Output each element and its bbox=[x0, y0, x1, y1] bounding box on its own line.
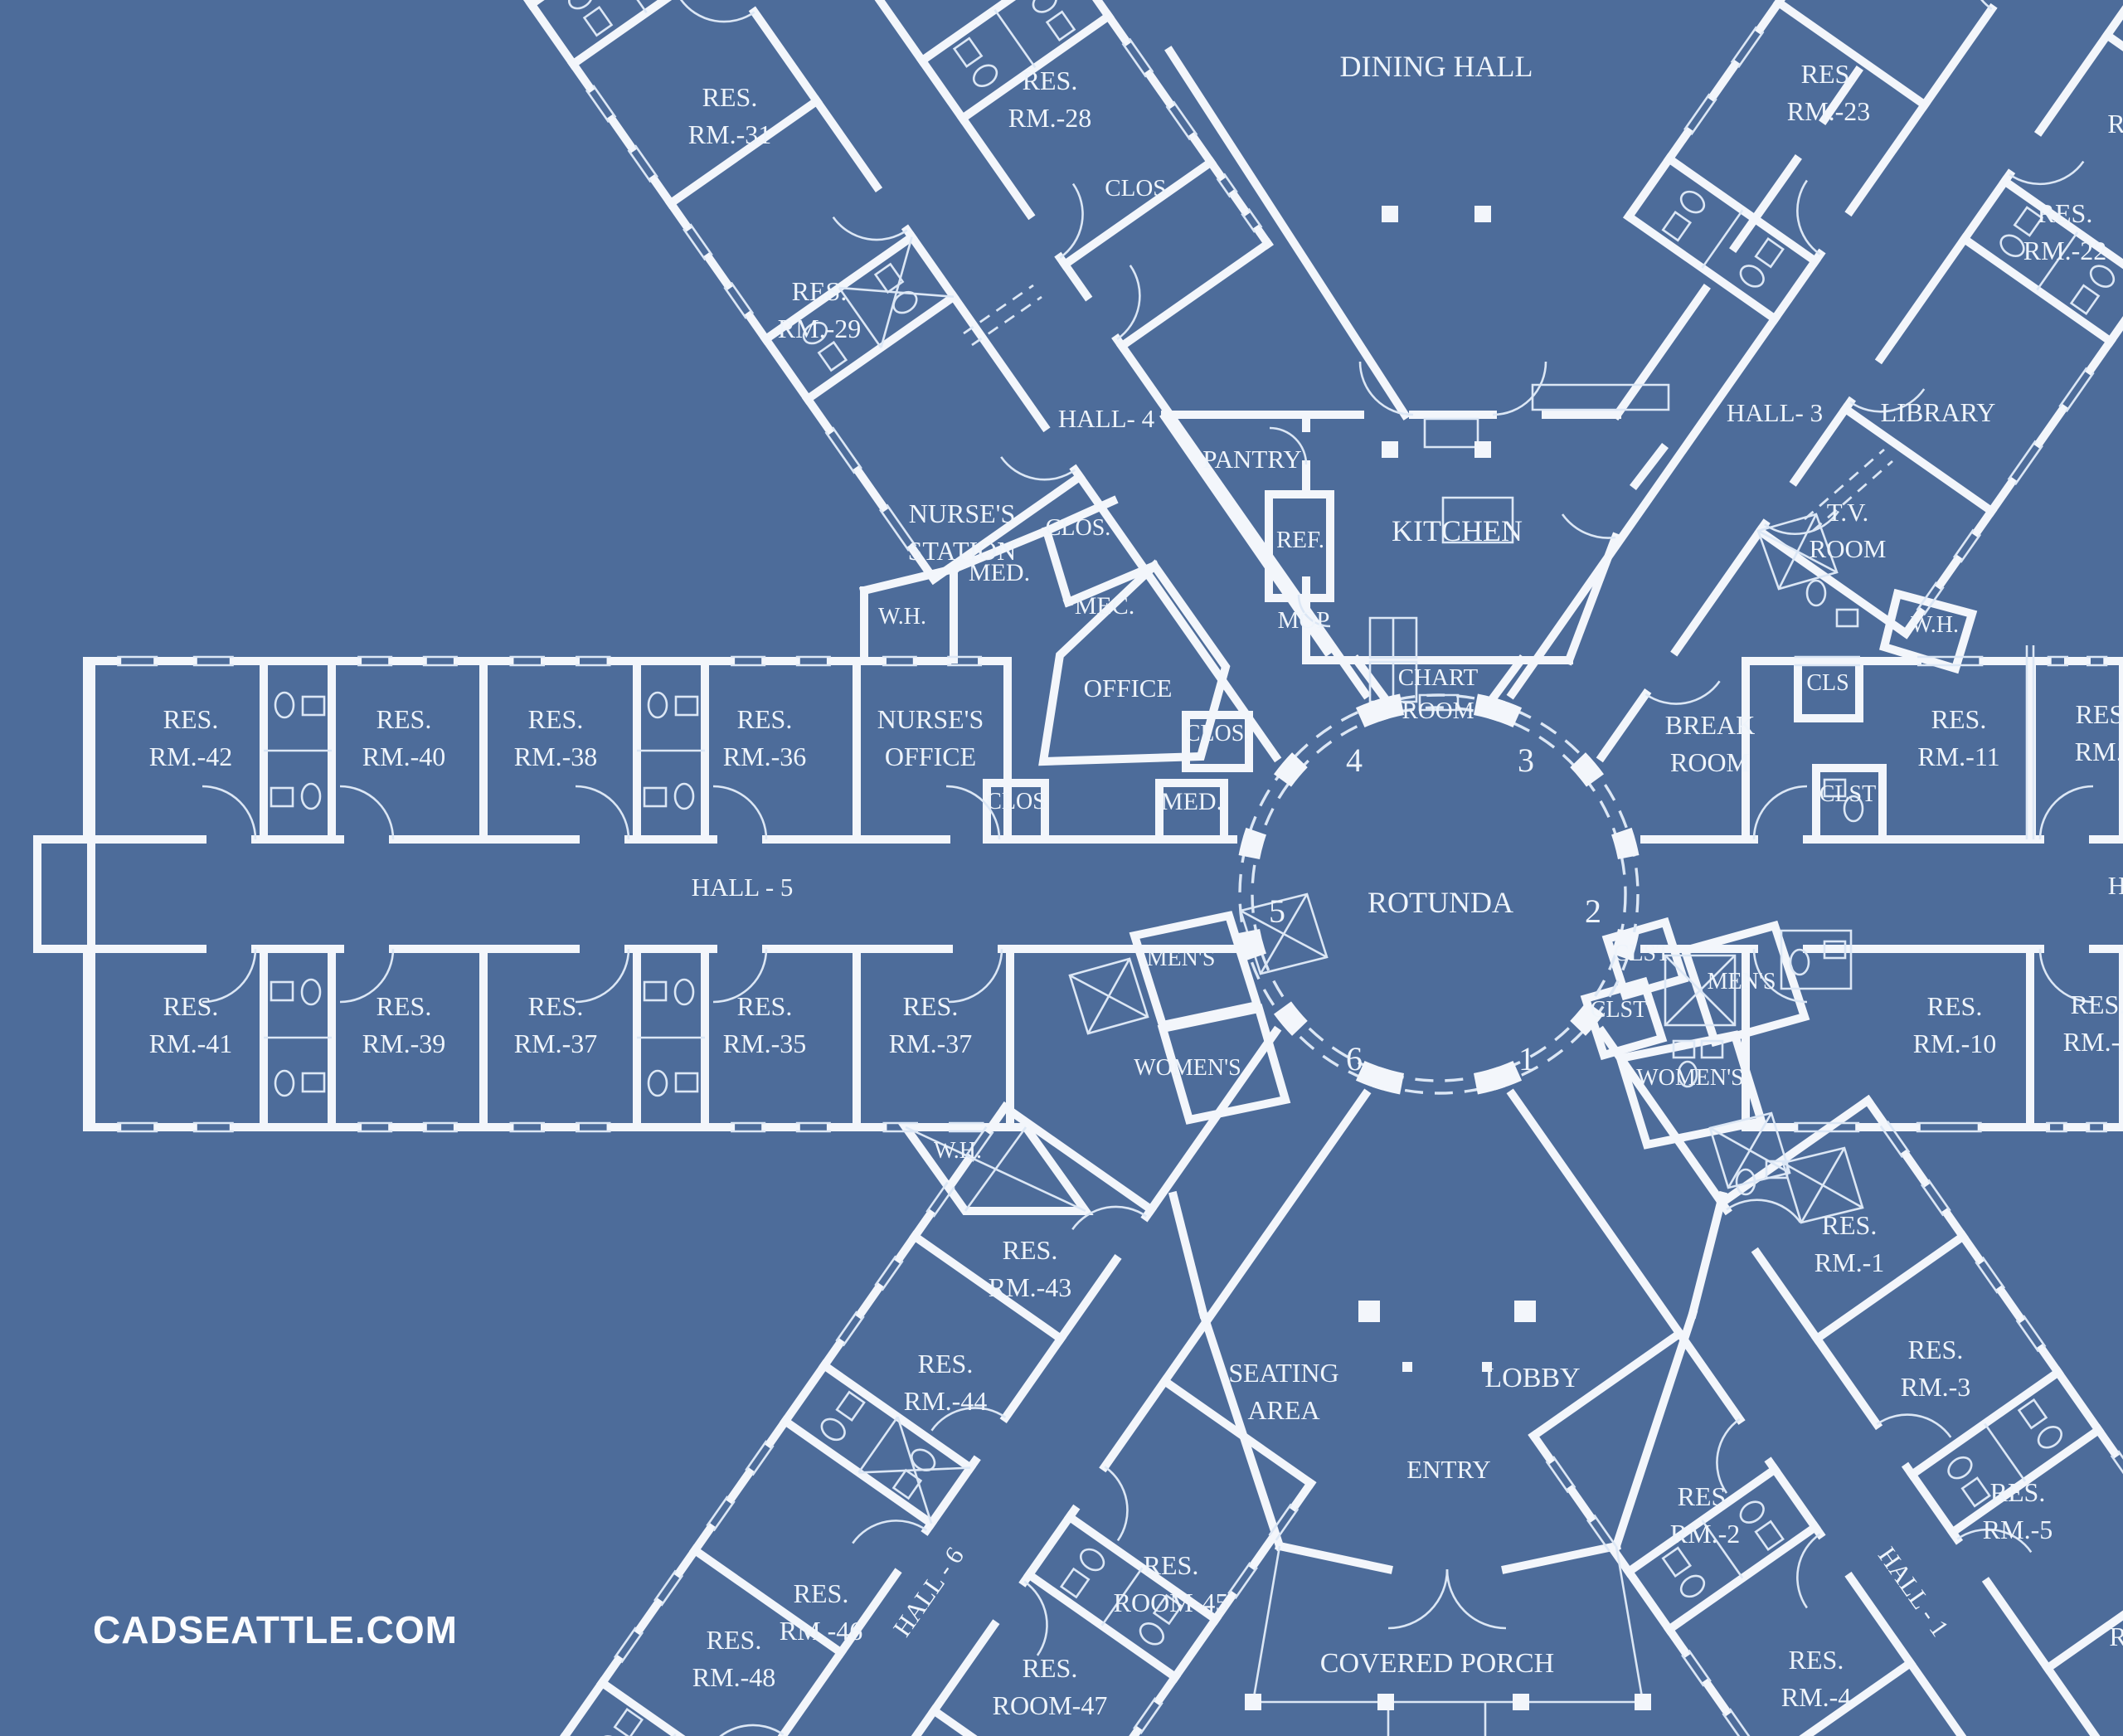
label-clos-b: CLOS bbox=[986, 789, 1046, 815]
label-clst-e: CLST bbox=[1819, 781, 1876, 807]
label-library: LIBRARY bbox=[1881, 397, 1996, 427]
label-womens-w: WOMEN'S bbox=[1134, 1055, 1241, 1081]
label-clos-c: CLOS. bbox=[1185, 721, 1251, 746]
label-res-rm-46: RES.RM.-46 bbox=[780, 1578, 862, 1646]
label-break-room: BREAKROOM bbox=[1665, 710, 1755, 777]
label-res-rm-42: RES.RM.-42 bbox=[149, 704, 232, 771]
label-hall-3: HALL- 3 bbox=[1727, 398, 1823, 427]
label-hall-6: HALL - 6 bbox=[887, 1542, 969, 1642]
label-ref: REF. bbox=[1276, 527, 1324, 553]
label-hall-4: HALL- 4 bbox=[1058, 404, 1155, 433]
label-num-4: 4 bbox=[1346, 742, 1363, 779]
label-num-3: 3 bbox=[1518, 742, 1534, 779]
label-clos-28: CLOS. bbox=[1105, 175, 1172, 202]
label-pantry: PANTRY bbox=[1202, 445, 1301, 474]
label-wh-w: W.H. bbox=[878, 604, 926, 630]
label-res-rm-10: RES.RM.-10 bbox=[1913, 991, 1996, 1058]
label-num-2: 2 bbox=[1585, 892, 1601, 930]
label-res-rm-31: RES.RM.-31 bbox=[688, 82, 771, 149]
label-num-6: 6 bbox=[1346, 1040, 1363, 1077]
label-med-b: MED. bbox=[1161, 788, 1222, 815]
label-res-rm-48: RES.RM.-48 bbox=[692, 1625, 775, 1692]
label-wh-ne: W.H. bbox=[1911, 612, 1959, 638]
label-office: OFFICE bbox=[1084, 673, 1173, 703]
column-post bbox=[1382, 206, 1398, 222]
label-nurses-office: NURSE'SOFFICE bbox=[877, 704, 984, 771]
label-covered-porch: COVERED PORCH bbox=[1320, 1648, 1554, 1679]
label-res-rm-4: RES.RM.-4 bbox=[1781, 1645, 1851, 1712]
label-partial-res-bot: RES.RM.-1 bbox=[2063, 990, 2123, 1057]
floor-plan-svg: RES.RM.-31RES.RM.-29RES.RM.-28CLOS.RES.R… bbox=[0, 0, 2123, 1736]
column-post bbox=[1382, 441, 1398, 458]
label-clst-2: CLST bbox=[1591, 997, 1647, 1023]
label-res-rm-36: RES.RM.-36 bbox=[723, 704, 806, 771]
wing-hall-5-west bbox=[87, 661, 1233, 1127]
label-wh-sw: W.H. bbox=[934, 1138, 982, 1164]
label-cls: CLS bbox=[1806, 670, 1849, 696]
column-post bbox=[1358, 1301, 1380, 1322]
fixtures-layer bbox=[117, 0, 2123, 1736]
label-seating-area: SEATINGAREA bbox=[1228, 1358, 1338, 1425]
label-lobby: LOBBY bbox=[1484, 1363, 1580, 1393]
label-res-rm-38: RES.RM.-38 bbox=[514, 704, 597, 771]
column-post bbox=[1635, 1694, 1651, 1710]
label-res-room-47: RES.ROOM-47 bbox=[993, 1653, 1108, 1720]
label-num-1: 1 bbox=[1518, 1040, 1535, 1077]
label-res-rm-11: RES.RM.-11 bbox=[1917, 704, 1999, 771]
label-dining-hall: DINING HALL bbox=[1340, 50, 1533, 83]
label-mop: MOP bbox=[1278, 607, 1330, 634]
label-entry: ENTRY bbox=[1406, 1455, 1491, 1484]
label-res-rm-1: RES.RM.-1 bbox=[1815, 1210, 1884, 1277]
walls-layer bbox=[37, 0, 2123, 1736]
label-res-rm-39: RES.RM.-39 bbox=[362, 991, 445, 1058]
label-res-rm-40: RES.RM.-40 bbox=[362, 704, 445, 771]
label-mens-e: MEN'S bbox=[1708, 969, 1776, 994]
label-res-rm-35: RES.RM.-35 bbox=[723, 991, 806, 1058]
label-res-rm-43: RES.RM.-43 bbox=[989, 1235, 1071, 1302]
label-res-rm-41: RES.RM.-41 bbox=[149, 991, 232, 1058]
column-post bbox=[1245, 1694, 1261, 1710]
label-womens-e: WOMEN'S bbox=[1636, 1065, 1744, 1091]
label-partial-r-top: R bbox=[2107, 109, 2123, 139]
blueprint-canvas: RES.RM.-31RES.RM.-29RES.RM.-28CLOS.RES.R… bbox=[0, 0, 2123, 1736]
label-res-rm-22: RES.RM.-22 bbox=[2023, 198, 2106, 265]
label-mens-w: MEN'S bbox=[1147, 946, 1216, 971]
label-clst-1: CLST bbox=[1614, 941, 1670, 966]
label-kitchen: KITCHEN bbox=[1392, 514, 1523, 547]
column-post bbox=[1513, 1694, 1529, 1710]
column-post bbox=[1514, 1301, 1536, 1322]
label-hall-2-partial: H bbox=[2108, 871, 2123, 900]
column-post bbox=[1474, 441, 1491, 458]
label-mec: MEC. bbox=[1075, 592, 1135, 620]
label-partial-r-bot: R bbox=[2109, 1622, 2123, 1651]
label-rotunda: ROTUNDA bbox=[1368, 886, 1513, 919]
label-hall-5: HALL - 5 bbox=[692, 873, 794, 902]
label-tv-room: T.V.ROOM bbox=[1809, 498, 1886, 563]
label-med-a: MED. bbox=[969, 559, 1030, 586]
column-post bbox=[1474, 206, 1491, 222]
wing-hall-4-northwest bbox=[443, 0, 1314, 575]
label-res-rm-5: RES.RM.-5 bbox=[1983, 1477, 2053, 1544]
label-partial-res-top: RES.RM.- bbox=[2075, 699, 2123, 766]
column-post bbox=[1402, 1362, 1412, 1372]
label-num-5: 5 bbox=[1269, 892, 1285, 930]
label-res-rm-44: RES.RM.-44 bbox=[904, 1349, 987, 1416]
label-watermark: CADSEATTLE.COM bbox=[93, 1608, 458, 1651]
column-post bbox=[1377, 1694, 1394, 1710]
label-res-rm-3: RES.RM.-3 bbox=[1901, 1335, 1970, 1402]
label-clos-a: CLOS. bbox=[1046, 515, 1111, 541]
